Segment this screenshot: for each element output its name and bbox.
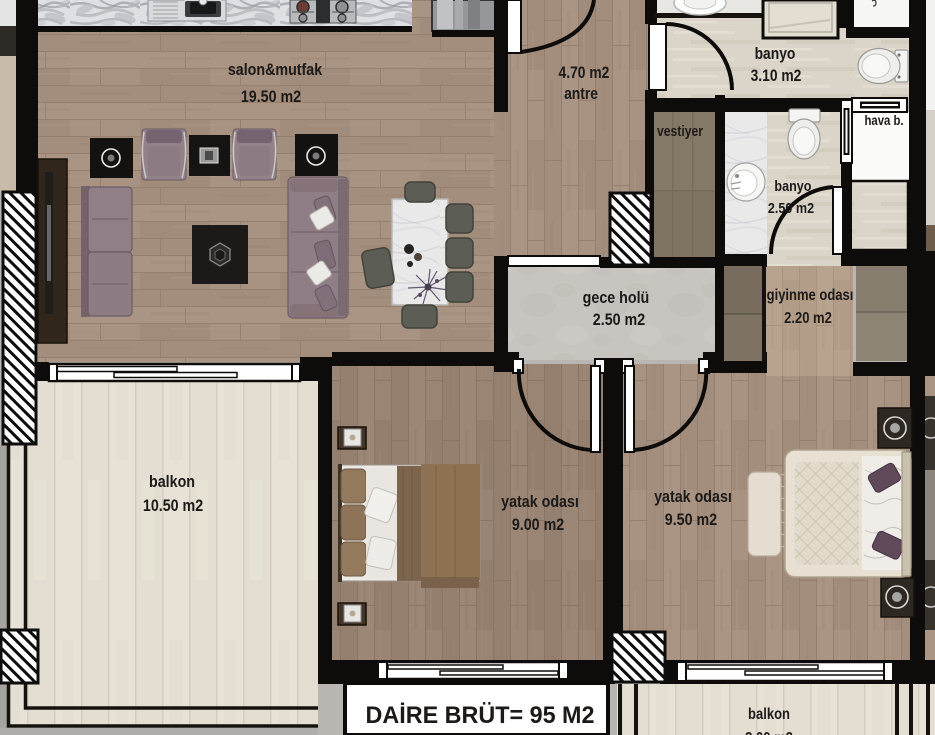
svg-text:2.20 m2: 2.20 m2 [784, 310, 832, 327]
svg-text:4.70 m2: 4.70 m2 [559, 64, 610, 82]
svg-text:19.50 m2: 19.50 m2 [241, 88, 302, 106]
svg-text:banyo: banyo [774, 177, 811, 194]
svg-text:gece holü: gece holü [583, 289, 650, 307]
svg-text:vestiyer: vestiyer [657, 123, 703, 139]
svg-text:9.50 m2: 9.50 m2 [665, 511, 718, 529]
svg-text:2.50 m2: 2.50 m2 [768, 199, 814, 216]
svg-text:yatak odası: yatak odası [501, 493, 579, 511]
svg-text:DAİRE BRÜT= 95 M2: DAİRE BRÜT= 95 M2 [366, 702, 595, 729]
svg-text:2.50 m2: 2.50 m2 [593, 311, 646, 329]
svg-text:3.10 m2: 3.10 m2 [751, 67, 802, 85]
svg-text:antre: antre [564, 85, 598, 103]
svg-text:giyinme odası: giyinme odası [767, 287, 854, 304]
svg-text:balkon: balkon [149, 473, 195, 491]
svg-text:banyo: banyo [755, 45, 796, 63]
svg-text:hava b.: hava b. [864, 113, 903, 128]
svg-text:3.00 m2: 3.00 m2 [745, 730, 793, 735]
svg-text:salon&mutfak: salon&mutfak [228, 61, 323, 79]
svg-text:yatak odası: yatak odası [654, 488, 732, 506]
svg-text:9.00 m2: 9.00 m2 [512, 516, 565, 534]
svg-text:10.50 m2: 10.50 m2 [143, 497, 204, 515]
svg-text:balkon: balkon [748, 706, 790, 723]
